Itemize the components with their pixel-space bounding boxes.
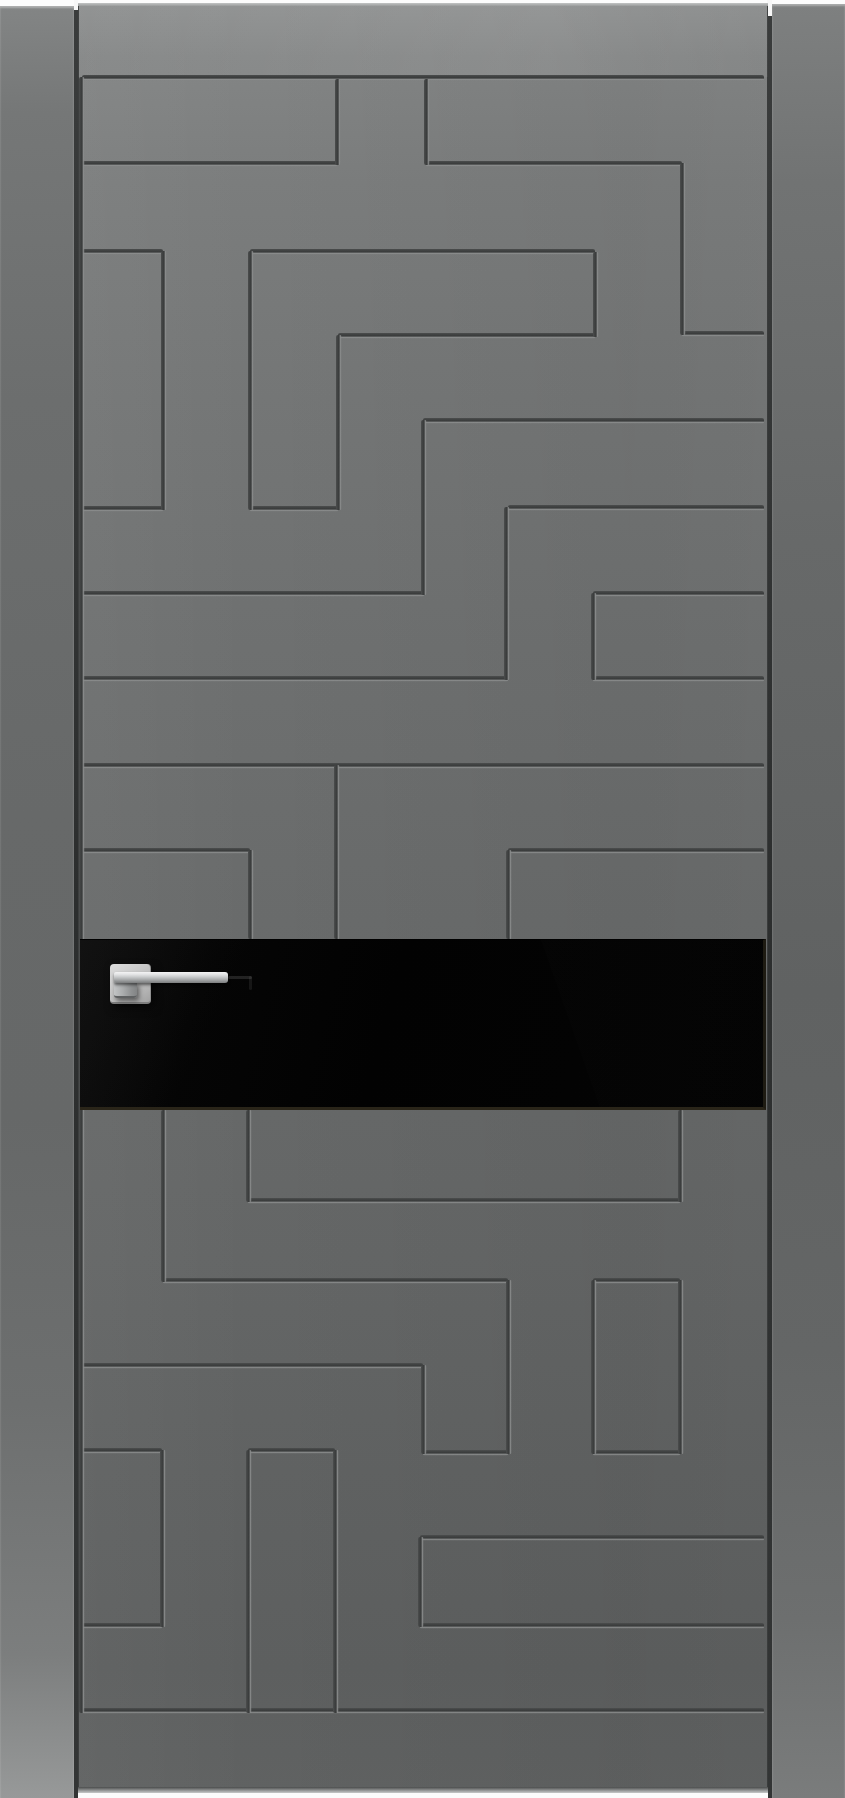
panel-groove: [680, 163, 686, 335]
panel-groove: [421, 420, 427, 595]
panel-groove: [79, 77, 85, 1713]
panel-groove: [163, 1278, 508, 1284]
panel-groove: [82, 75, 764, 81]
top-rail-sheen: [78, 3, 768, 77]
panel-groove: [591, 593, 597, 680]
panel-groove: [334, 765, 340, 939]
panel-groove: [424, 79, 430, 165]
panel-groove: [82, 161, 337, 167]
frame-gap-right: [768, 16, 772, 1798]
panel-groove: [82, 1623, 162, 1629]
door-slab: [78, 3, 768, 1793]
slab-bottom-edge: [78, 1787, 768, 1793]
panel-groove: [82, 591, 424, 597]
slab-sheen: [79, 3, 767, 1793]
panel-groove: [420, 1623, 764, 1629]
panel-groove: [248, 251, 254, 510]
handle-shadow: [249, 976, 252, 990]
panel-groove: [82, 506, 163, 512]
panel-groove: [682, 331, 764, 337]
panel-groove: [591, 1280, 597, 1454]
panel-groove: [593, 252, 599, 337]
panel-groove: [508, 848, 764, 854]
panel-groove: [82, 1448, 162, 1454]
panel-groove: [418, 1537, 424, 1627]
panel-groove: [335, 79, 341, 165]
panel-groove: [593, 1278, 680, 1284]
panel-groove: [82, 249, 163, 255]
panel-groove: [336, 335, 342, 510]
panel-groove: [421, 1365, 427, 1454]
panel-groove: [426, 161, 682, 167]
panel-groove: [506, 850, 512, 939]
door-frame-stile-right: [772, 4, 845, 1798]
panel-groove: [161, 1110, 167, 1282]
panel-groove: [161, 251, 167, 510]
door-frame-stile-left: [0, 6, 74, 1798]
panel-groove: [504, 507, 510, 680]
panel-groove: [333, 1450, 339, 1713]
panel-groove: [160, 1450, 166, 1627]
panel-groove: [248, 1198, 680, 1204]
panel-groove: [593, 591, 764, 597]
handle-neck: [114, 982, 137, 998]
slab-top-edge: [78, 3, 768, 6]
panel-groove: [248, 850, 254, 939]
door-product-photo: [0, 0, 845, 1798]
panel-groove: [508, 505, 764, 511]
panel-groove: [678, 1110, 684, 1202]
panel-groove: [593, 676, 764, 682]
panel-groove: [338, 333, 595, 339]
panel-groove: [423, 418, 764, 424]
panel-groove: [82, 1708, 764, 1714]
panel-groove: [82, 1363, 423, 1369]
panel-groove: [82, 848, 250, 854]
panel-groove: [593, 1450, 680, 1456]
panel-groove: [248, 1448, 335, 1454]
panel-groove: [250, 249, 595, 255]
panel-groove: [250, 506, 338, 512]
panel-groove: [678, 1280, 684, 1454]
handle-lever: [114, 972, 228, 983]
panel-groove: [246, 1110, 252, 1202]
panel-groove: [82, 676, 508, 682]
glass-insert: [80, 939, 766, 1110]
panel-groove: [82, 763, 764, 769]
panel-groove: [420, 1535, 764, 1541]
panel-groove: [246, 1450, 252, 1713]
panel-groove: [506, 1280, 512, 1454]
panel-groove: [423, 1450, 508, 1456]
